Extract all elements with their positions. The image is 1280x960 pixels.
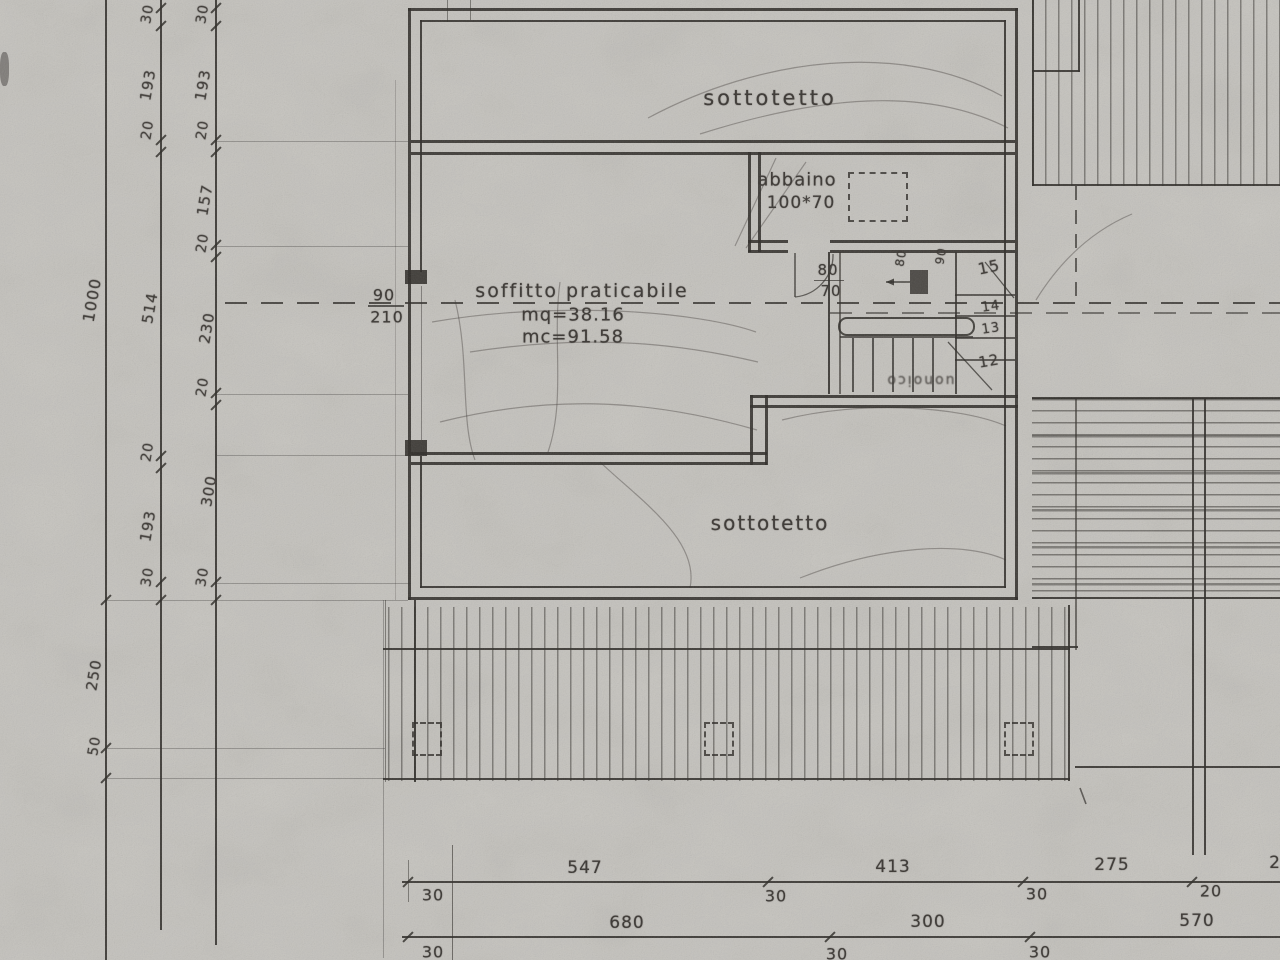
stair-step-number: 15 (976, 255, 1002, 278)
roof-edge (385, 600, 386, 782)
dim-line-bottom-2 (402, 936, 1280, 938)
extension-line (107, 600, 408, 601)
dim-label: 570 (1179, 911, 1214, 931)
stair-tread (852, 338, 854, 392)
room-label-bottom: sottotetto (711, 511, 830, 535)
attic-note-volume: mc=91.58 (522, 327, 624, 348)
roof-hatch-top (1032, 0, 1280, 186)
wall-inner-right (1004, 20, 1006, 588)
wall-inner-top (420, 20, 1006, 22)
interior-wall (411, 452, 767, 455)
dim-label: 20 (138, 441, 157, 463)
dim-label: 300 (197, 474, 220, 508)
dim-label: 300 (910, 912, 945, 932)
roof-window-symbol (412, 722, 442, 756)
dim-label: 2 (1269, 853, 1280, 873)
interior-wall (750, 395, 753, 465)
dim-label: 157 (193, 183, 216, 217)
stair-note: uonoico (885, 372, 954, 388)
wall-outer-bottom (408, 597, 1018, 600)
stair-dim: 90 (933, 246, 950, 265)
extension-line (107, 748, 385, 749)
roof-ridge-line (1192, 398, 1194, 855)
interior-wall (411, 140, 1015, 143)
interior-wall (748, 240, 788, 243)
dim-label: 20 (193, 232, 212, 254)
dim-label: 30 (1026, 885, 1048, 904)
roof-edge (1075, 398, 1077, 650)
attic-note-title: soffitto praticabile (475, 280, 688, 302)
interior-wall (830, 250, 1015, 253)
dim-label: 30 (138, 3, 157, 25)
centerline-dashed (225, 302, 1280, 304)
stair-tread (955, 294, 1015, 296)
wall-opening-line (421, 286, 422, 440)
dim-label: 30 (193, 3, 212, 25)
dim-label: 250 (82, 658, 105, 692)
extension-line (217, 583, 411, 584)
roof-window-symbol (704, 722, 734, 756)
stair-step-number: 12 (977, 350, 1001, 371)
dim-label: 30 (826, 945, 848, 960)
dim-label: 20 (193, 376, 212, 398)
dim-label: 547 (567, 858, 602, 878)
fraction-line (814, 280, 844, 281)
dim-line-bottom-1 (402, 881, 1280, 883)
fraction-line (368, 305, 404, 307)
interior-wall (830, 240, 1015, 243)
extension-line (447, 0, 448, 22)
dim-label: 30 (422, 943, 444, 960)
dormer-label: abbaino (757, 170, 836, 191)
interior-wall (411, 462, 767, 465)
stair-door-size-num: 80 (817, 261, 838, 279)
roof-edge (1068, 605, 1070, 781)
centerline-dashed (830, 312, 1280, 314)
stair-step-number: 13 (981, 320, 1001, 337)
wall-inner-left (420, 456, 422, 588)
dim-label: 275 (1094, 855, 1129, 875)
dim-label: 193 (136, 509, 159, 543)
attic-note-area: mq=38.16 (521, 305, 625, 326)
roof-edge (1032, 184, 1280, 186)
roof-edge (1075, 766, 1280, 768)
extension-line (217, 394, 408, 395)
extension-line (452, 845, 453, 960)
interior-wall (748, 250, 788, 253)
floor-plan-scan: 1000 250 50 30 193 20 514 20 193 30 30 1… (0, 0, 1280, 960)
interior-wall (758, 152, 761, 252)
dim-label: 30 (765, 887, 787, 906)
roof-edge (1032, 0, 1034, 186)
roof-hatch-right (1032, 398, 1280, 598)
dim-label: 30 (193, 566, 212, 588)
extension-line (395, 80, 396, 600)
stair-tread (872, 338, 874, 392)
roof-edge (1032, 597, 1280, 599)
dim-label: 20 (138, 119, 157, 141)
dim-label: 193 (136, 68, 159, 102)
wall-outer-top (408, 8, 1018, 11)
dim-label: 514 (138, 291, 161, 325)
interior-wall (765, 395, 768, 465)
roof-edge (1078, 0, 1080, 72)
dormer-size: 100*70 (767, 193, 836, 213)
roof-edge (1032, 70, 1080, 72)
interior-wall (750, 405, 1018, 408)
roof-dashed-line (1075, 186, 1077, 304)
dim-label: 20 (193, 119, 212, 141)
wall-inner-left (420, 20, 422, 272)
wall-inner-bottom (420, 586, 1006, 588)
interior-wall (748, 152, 751, 252)
stair-door-size-den: 70 (820, 282, 841, 300)
stair-line (840, 336, 973, 338)
stair-stringer (955, 252, 957, 394)
dim-label: 193 (191, 68, 214, 102)
stair-newel-post (910, 270, 928, 294)
dormer-window-symbol (848, 172, 908, 222)
dim-label: 30 (1029, 943, 1051, 960)
dim-label: 30 (422, 886, 444, 905)
dim-label: 50 (85, 735, 104, 757)
wall-outer-right (1015, 8, 1018, 600)
scan-smudge (0, 52, 9, 86)
wall-outer-left (408, 8, 411, 600)
dim-label: 30 (138, 566, 157, 588)
roof-ridge-line (1204, 398, 1206, 855)
door-size-den: 210 (370, 308, 404, 327)
stair-arrow (886, 279, 910, 286)
dim-label: 413 (875, 857, 910, 877)
roof-edge (383, 778, 1070, 780)
dim-label: 680 (609, 913, 644, 933)
roof-edge (1032, 397, 1280, 399)
interior-wall (411, 152, 1015, 155)
room-label-top: sottotetto (703, 86, 837, 110)
dim-label: 1000 (79, 276, 105, 323)
stray-mark (1080, 788, 1086, 804)
roof-window-symbol (1004, 722, 1034, 756)
door-jamb (405, 270, 427, 284)
dim-label: 20 (1200, 882, 1222, 901)
extension-line (217, 455, 411, 456)
roof-edge (383, 648, 1070, 650)
extension-line (217, 141, 408, 142)
interior-wall (750, 395, 1018, 398)
dim-chain-line-a (105, 0, 107, 960)
extension-line (107, 778, 385, 779)
stair-dim: 80 (893, 248, 910, 267)
extension-line (217, 246, 408, 247)
